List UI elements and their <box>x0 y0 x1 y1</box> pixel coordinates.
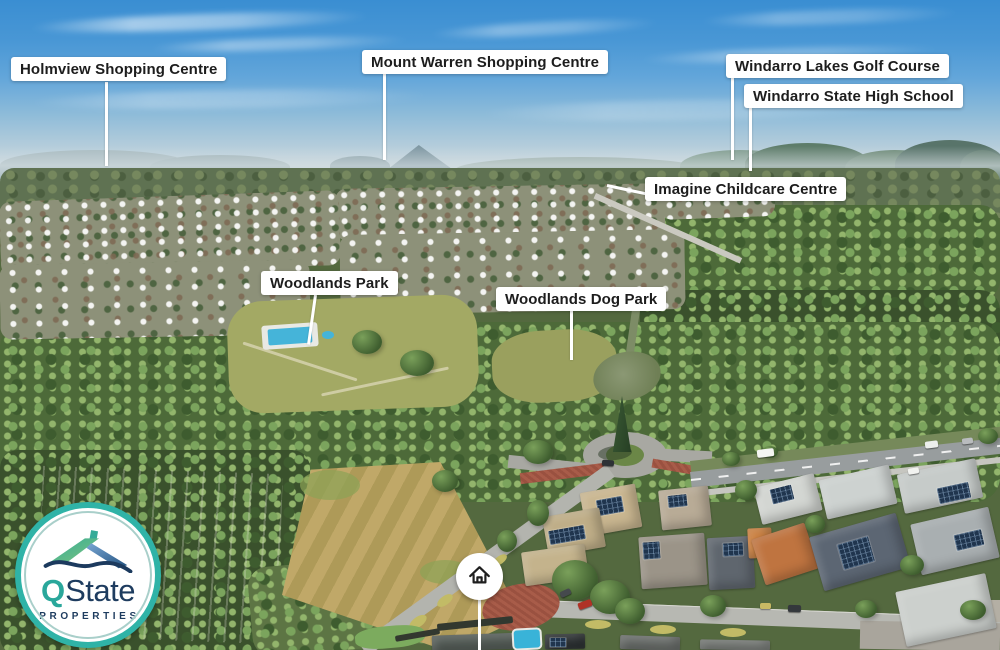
forest-canopy <box>655 205 1000 300</box>
marker-pointer-line <box>478 599 481 650</box>
location-label-woodlands-dog-park: Woodlands Dog Park <box>496 287 666 311</box>
field-green-patch <box>300 470 360 500</box>
location-label-windarro-state-high-school: Windarro State High School <box>744 84 963 108</box>
tree-canopy-blob <box>805 515 825 533</box>
tree-canopy-blob <box>700 595 726 617</box>
tree-canopy-blob <box>527 500 549 526</box>
logo-inner-ring <box>24 511 152 639</box>
location-label-windarro-lakes-golf-course: Windarro Lakes Golf Course <box>726 54 949 78</box>
car <box>788 605 801 612</box>
garden-shrub <box>650 625 676 634</box>
car <box>602 460 614 467</box>
tree-canopy-blob <box>978 428 998 444</box>
house-roof <box>658 485 712 530</box>
location-label-imagine-childcare-centre: Imagine Childcare Centre <box>645 177 846 201</box>
woodlands-park-clearing <box>226 294 480 415</box>
tree-canopy-blob <box>615 598 645 624</box>
pointer-line-mount-warren <box>383 74 386 160</box>
location-label-holmview-shopping-centre: Holmview Shopping Centre <box>11 57 226 81</box>
location-label-woodlands-park: Woodlands Park <box>261 271 398 295</box>
house-roof <box>700 639 770 650</box>
pointer-line-windarro-high <box>749 108 752 171</box>
pointer-line-woodlands-dog-park <box>570 310 573 360</box>
car <box>760 603 771 609</box>
swimming-pool <box>267 326 312 345</box>
tree-canopy-blob <box>432 470 458 492</box>
swimming-pool <box>322 331 334 339</box>
location-label-mount-warren-shopping-centre: Mount Warren Shopping Centre <box>362 50 608 74</box>
house-roof <box>620 635 680 650</box>
tree-canopy-blob <box>523 440 553 464</box>
property-pool <box>514 629 541 648</box>
tree-canopy-blob <box>400 350 434 376</box>
tree-canopy-blob <box>497 530 517 552</box>
solar-panel <box>723 542 744 556</box>
property-marker <box>456 553 503 600</box>
solar-panel <box>642 541 660 559</box>
qstate-properties-logo: QState PROPERTIES <box>15 502 161 648</box>
solar-panel <box>667 494 687 508</box>
tree-canopy-blob <box>900 555 924 575</box>
tree-canopy-blob <box>960 600 986 620</box>
tree-canopy-blob <box>735 480 757 500</box>
aerial-photo: Holmview Shopping Centre Mount Warren Sh… <box>0 0 1000 650</box>
garden-shrub <box>585 620 611 629</box>
tree-canopy-blob <box>855 600 877 618</box>
solar-panel <box>550 638 566 647</box>
garden-shrub <box>720 628 746 637</box>
tree-canopy-blob <box>352 330 382 354</box>
tree-canopy-blob <box>722 452 740 466</box>
pointer-line-holmview <box>105 82 108 166</box>
pointer-line-windarro-golf <box>731 78 734 160</box>
house-icon <box>466 563 493 590</box>
